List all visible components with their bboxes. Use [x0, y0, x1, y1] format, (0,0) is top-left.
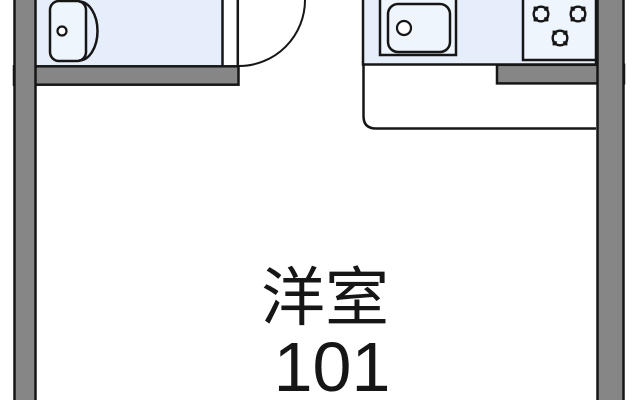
room-label: 洋室 101 [261, 262, 390, 400]
room-name-text: 洋室 [261, 262, 389, 334]
floor-plan: 洋室 101 [0, 0, 640, 400]
floor-plan-page: 洋室 101 [0, 0, 640, 400]
bathtub-basin [50, 1, 86, 61]
right-wall [598, 0, 624, 400]
left-wall [15, 0, 36, 400]
bathroom-wall [14, 66, 239, 84]
room-number-text: 101 [274, 328, 391, 400]
sink-icon [380, 0, 456, 55]
stove-icon [523, 0, 596, 60]
bathtub-drain [58, 27, 67, 36]
door-icon [238, 0, 305, 66]
door-swing-arc [239, 0, 305, 66]
sink-drain [397, 21, 411, 35]
